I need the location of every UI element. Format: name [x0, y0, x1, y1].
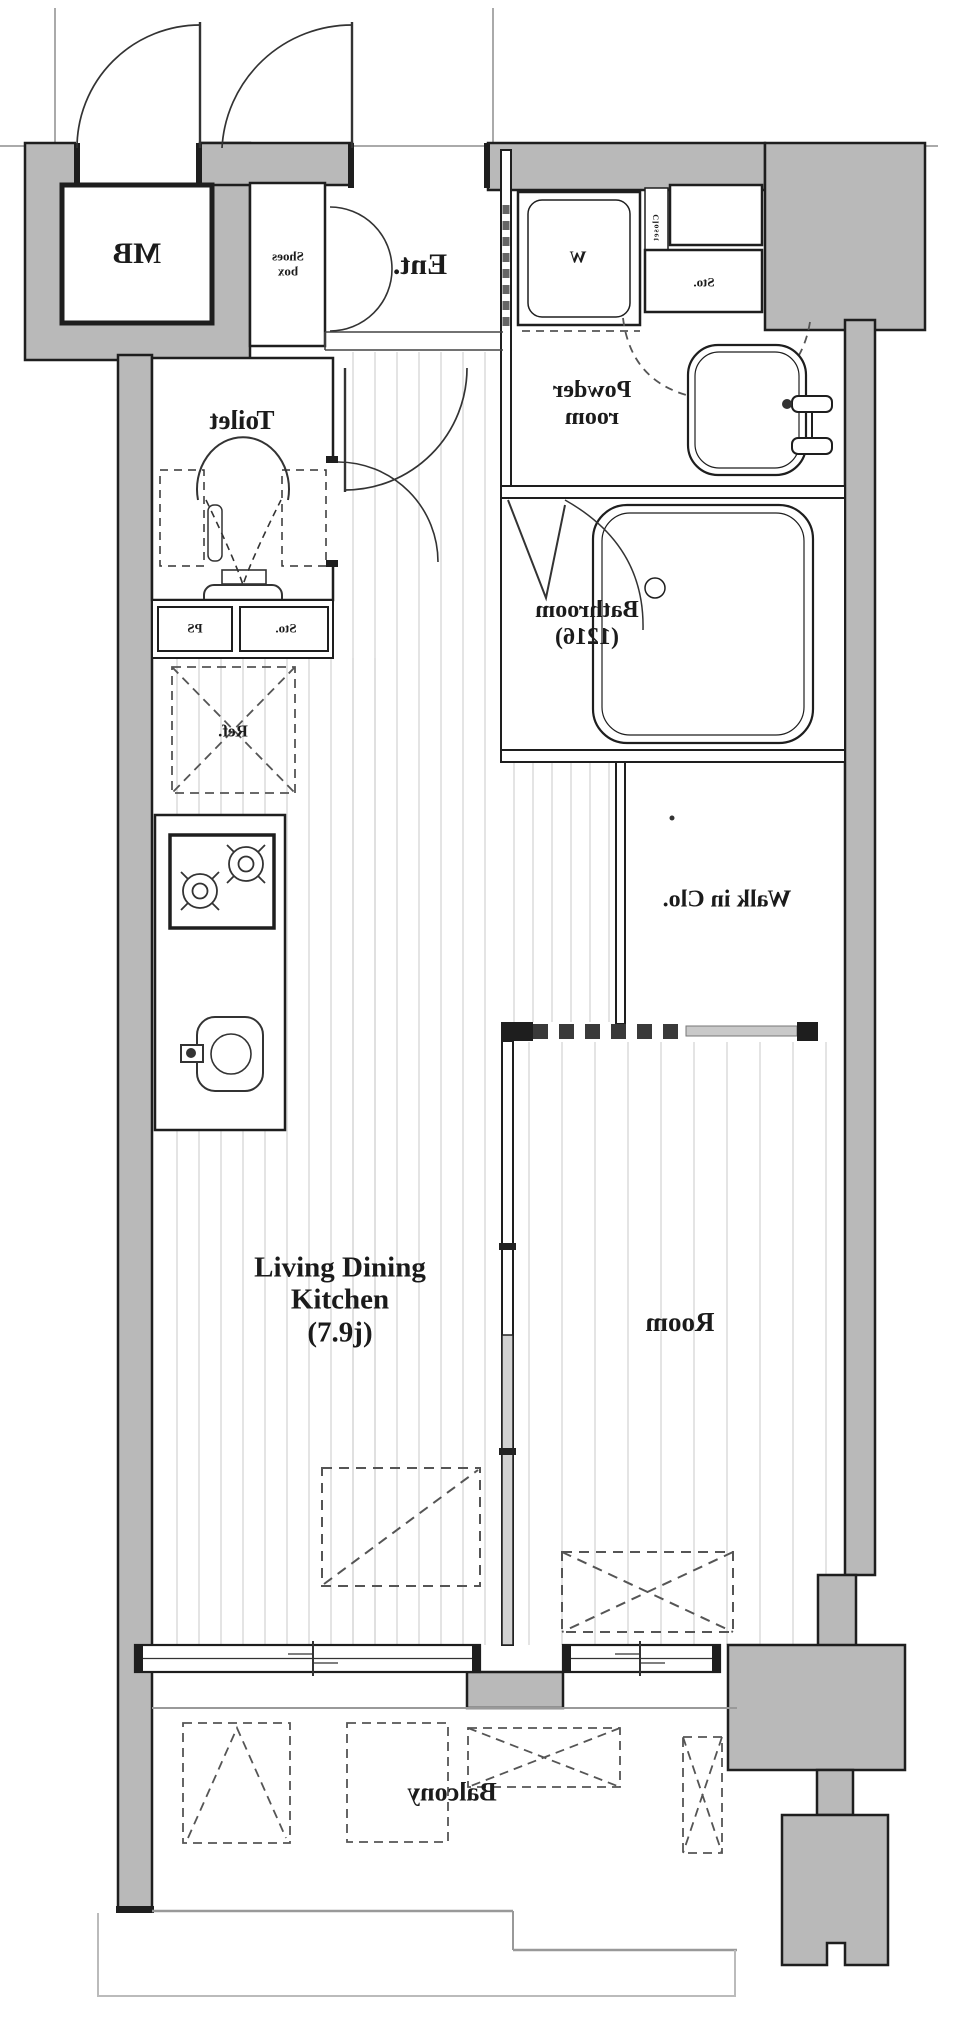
- washer-label: W: [570, 247, 587, 266]
- powder-room-label: Powder room: [517, 377, 667, 431]
- storage-mid-label: Sto.: [275, 622, 296, 637]
- room-top-wall: [501, 1022, 818, 1041]
- refrigerator-label: Ref.: [218, 721, 248, 740]
- entrance-door-arcs: [77, 22, 352, 148]
- closet-label: Closet: [653, 214, 662, 241]
- toilet-label: Toilet: [209, 405, 274, 435]
- room-label: Room: [646, 1307, 715, 1337]
- floorplan-drawing: [0, 0, 960, 2025]
- ldk-label: Living Dining Kitchen (7.9j): [200, 1251, 480, 1348]
- shoes-box-doors: [330, 207, 392, 331]
- vanity-basin: [688, 345, 832, 475]
- balcony-windows: [135, 1641, 737, 1708]
- upper-right-compartment: [670, 185, 762, 245]
- kitchen-counter: [155, 815, 285, 1130]
- entrance-label: Ent.: [393, 248, 447, 282]
- entrance-step: [325, 332, 503, 350]
- exterior-lines: [0, 8, 938, 146]
- storage-top-label: Sto.: [693, 276, 714, 291]
- ldk-room-partition: [499, 1041, 516, 1645]
- balcony-edges: [98, 1911, 737, 1996]
- bathroom-label: Bathroom (1216): [497, 597, 677, 651]
- ps-label: PS: [187, 622, 202, 637]
- balcony-label: Balcony: [407, 1777, 497, 1806]
- shoes-box-label: Shoes box: [253, 249, 323, 278]
- ps-sto-row: [152, 600, 333, 658]
- walk-in-closet-label: Walk in Clo.: [663, 887, 792, 914]
- mb-label: MB: [113, 237, 161, 271]
- floorplan: MB Shoes box Ent. W Closet Sto. Powder r…: [0, 0, 960, 2025]
